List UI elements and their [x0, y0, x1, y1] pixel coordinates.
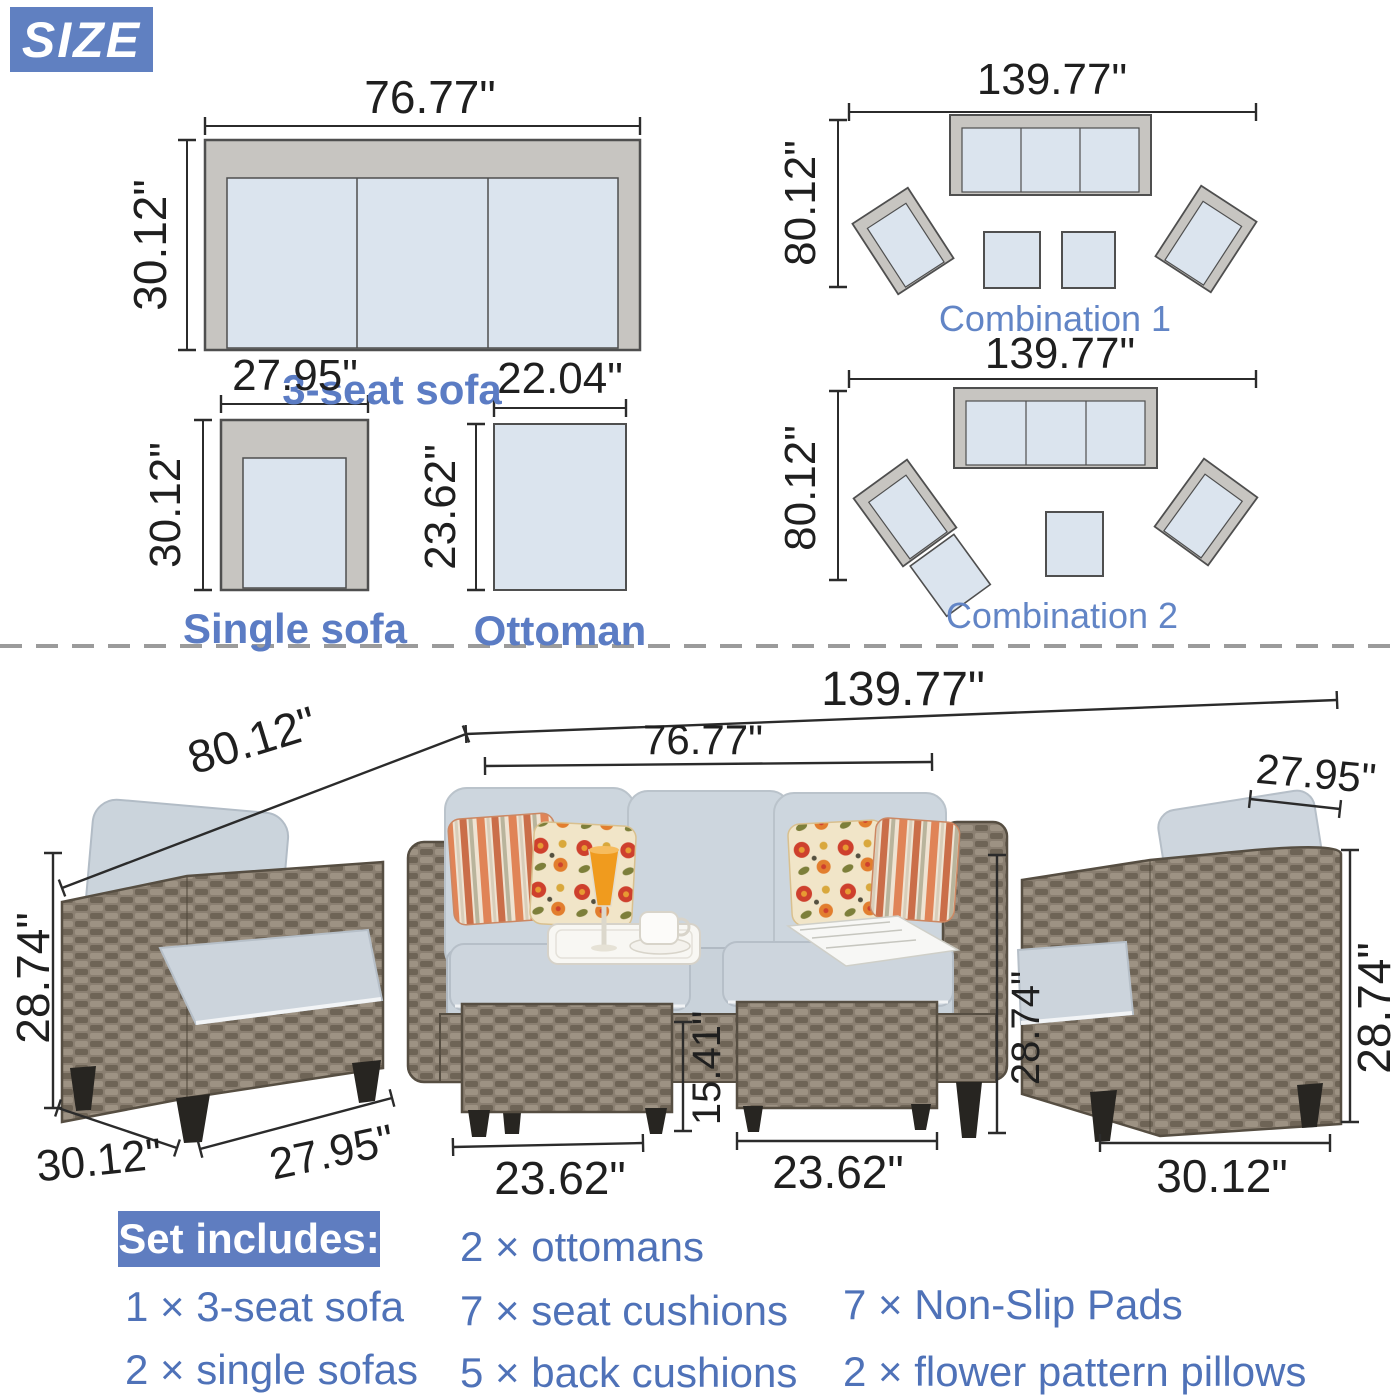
photo-dim-sofa-width: 76.77": [643, 719, 763, 761]
single-sofa-top-view: [203, 404, 368, 590]
combination-1-layout: [838, 112, 1257, 294]
dim-single-depth: 30.12": [144, 442, 188, 568]
set-item-back-cushions: 5 × back cushions: [460, 1352, 797, 1394]
set-item-3seat-sofa: 1 × 3-seat sofa: [125, 1286, 404, 1328]
set-item-flower-pillows: 2 × flower pattern pillows: [843, 1351, 1306, 1393]
dim-combo1-depth: 80.12": [779, 140, 823, 266]
label-combination-2: Combination 2: [946, 598, 1178, 634]
set-includes-title: Set includes:: [118, 1211, 380, 1267]
photo-dim-ottoman-height: 15.41": [687, 1011, 727, 1125]
size-badge: SIZE: [10, 7, 153, 72]
left-armchair: [62, 798, 383, 1143]
dim-3seat-depth: 30.12": [127, 179, 173, 310]
dim-3seat-width: 76.77": [364, 74, 495, 120]
photo-dim-ottoman2-width: 23.62": [772, 1149, 903, 1195]
right-armchair: [1018, 788, 1341, 1142]
label-ottoman: Ottoman: [474, 610, 647, 652]
ottoman-2: [723, 916, 958, 1132]
dim-ottoman-depth: 23.62": [419, 444, 463, 570]
size-infographic: SIZE 76.77" 30.12" 3-seat sofa 27.95" 30…: [0, 0, 1400, 1400]
ottoman-top-view: [476, 408, 626, 590]
dim-combo2-width: 139.77": [985, 332, 1135, 376]
photo-dim-sofa-height: 28.74": [1006, 971, 1046, 1085]
combination-2-layout: [838, 379, 1257, 620]
three-seat-sofa-top-view: [187, 126, 640, 350]
photo-dim-right-chair-width: 27.95": [1254, 748, 1377, 800]
dim-ottoman-width: 22.04": [497, 357, 623, 401]
photo-dim-right-chair-height: 28.74": [1351, 942, 1397, 1073]
photo-dim-ottoman1-width: 23.62": [494, 1155, 625, 1201]
set-item-ottomans: 2 × ottomans: [460, 1226, 704, 1268]
striped-pillow-right: [870, 817, 961, 923]
set-item-single-sofas: 2 × single sofas: [125, 1349, 418, 1391]
photo-dim-right-chair-depth: 30.12": [1156, 1153, 1287, 1199]
dim-single-width: 27.95": [232, 354, 358, 398]
label-single-sofa: Single sofa: [183, 608, 407, 650]
floral-pillow-left: [529, 821, 636, 928]
set-item-seat-cushions: 7 × seat cushions: [460, 1290, 788, 1332]
dim-combo2-depth: 80.12": [779, 425, 823, 551]
photo-dim-left-chair-height: 28.74": [10, 912, 56, 1043]
dim-combo1-width: 139.77": [977, 58, 1127, 102]
set-item-nonslip-pads: 7 × Non-Slip Pads: [843, 1284, 1183, 1326]
photo-dim-total-width: 139.77": [821, 666, 985, 714]
